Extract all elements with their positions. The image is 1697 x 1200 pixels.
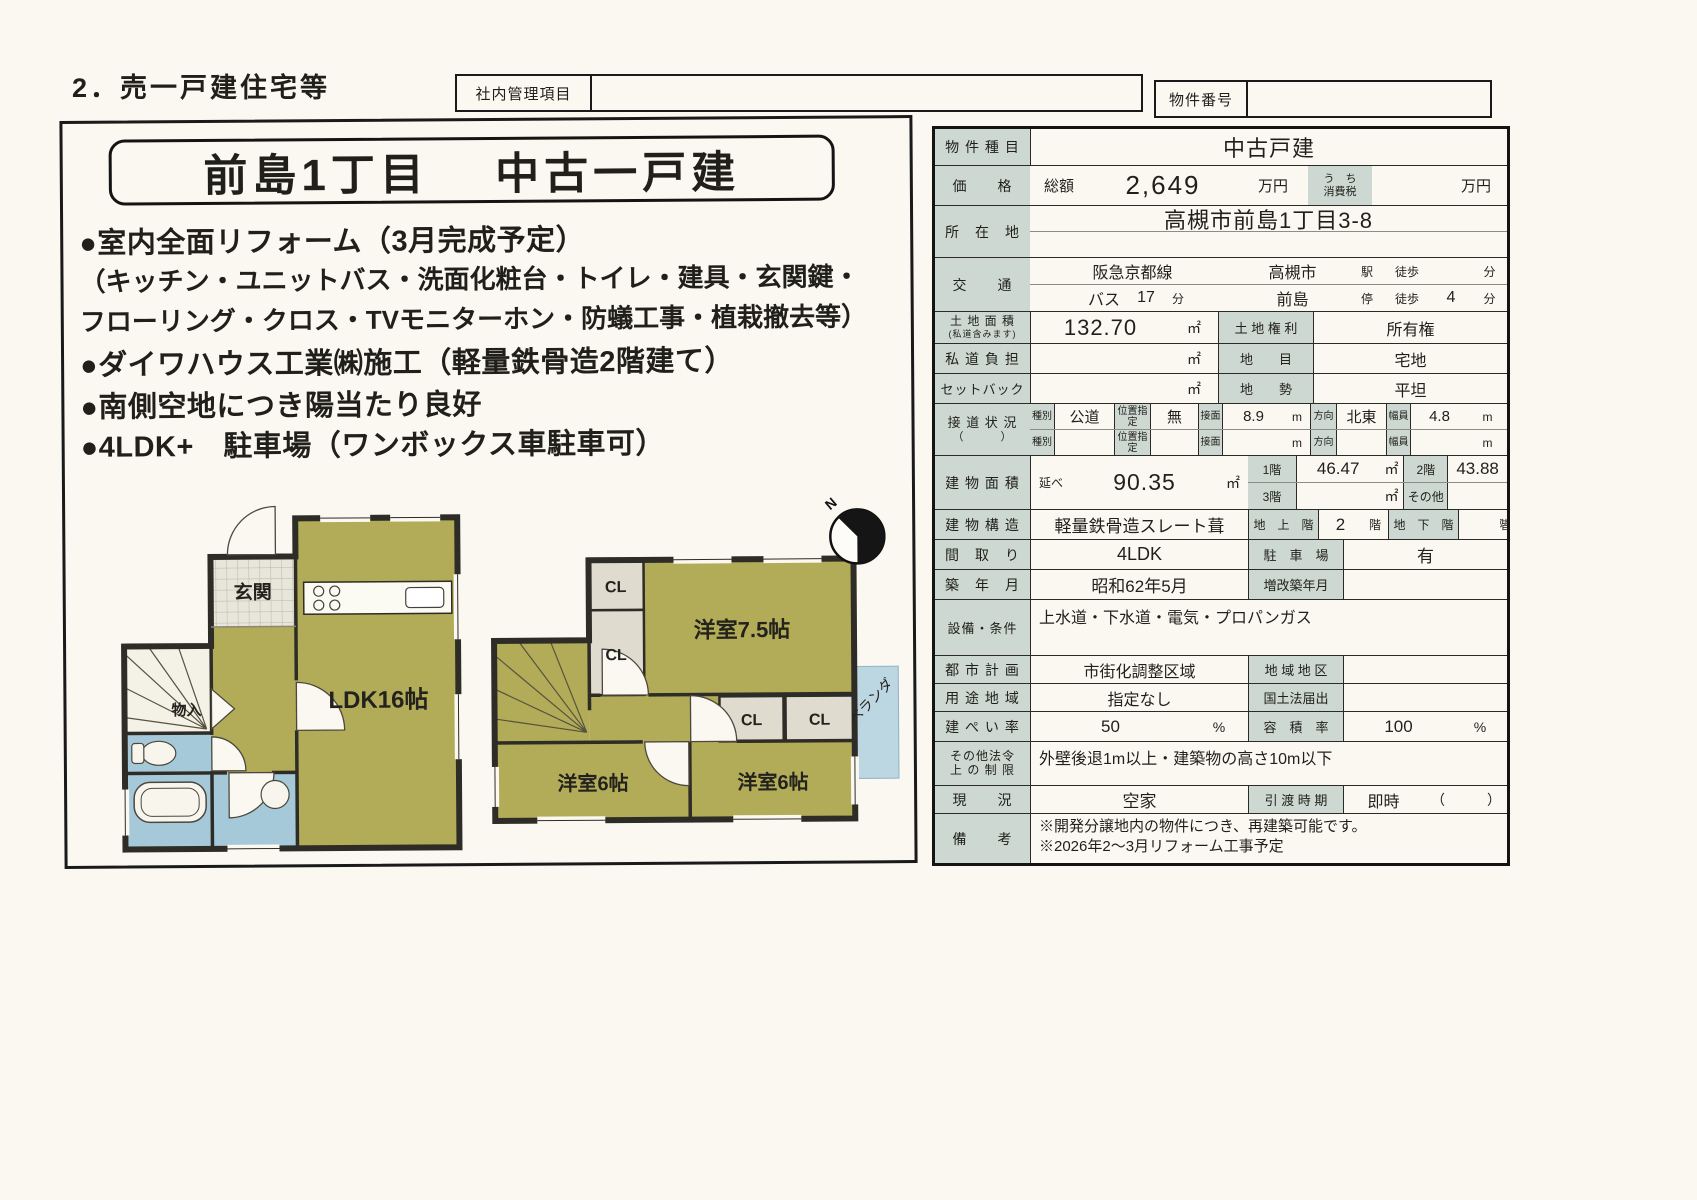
floor-other-label: その他 [1403, 483, 1447, 509]
property-number-box: 物件番号 [1154, 80, 1492, 118]
price-tax-value [1372, 166, 1445, 205]
transport-rail: 阪急京都線 [1030, 258, 1235, 284]
road-frontage-unit-2: m [1284, 430, 1310, 455]
land-rights-label: 土 地 権 利 [1218, 312, 1313, 343]
land-category-value: 宅地 [1313, 344, 1507, 373]
row-other-restrictions: その他法令 上 の 制 限 外壁後退1m以上・建築物の高さ10m以下 [935, 741, 1507, 785]
terrain-label: 地 勢 [1218, 374, 1313, 403]
handover-paren: （ ） [1423, 786, 1507, 813]
current-status-label: 現 況 [935, 786, 1030, 813]
coverage-unit: % [1190, 712, 1248, 741]
zoning-value: 指定なし [1030, 684, 1248, 711]
road-access-label: 接 道 状 況 （ ） [935, 404, 1030, 455]
room-label-monoire: 物入 [171, 701, 201, 719]
location-label: 所 在 地 [935, 206, 1030, 257]
building-area-total: 延べ 90.35 ㎡ [1030, 456, 1248, 509]
below-ground-value [1458, 510, 1500, 539]
structure-value: 軽量鉄骨造スレート葺 [1030, 510, 1248, 539]
property-spec-table: 物 件 種 目 中古戸建 価 格 総額 2,649 万円 う ち 消費税 万円 … [932, 126, 1510, 866]
road-type-value: 公道 [1054, 404, 1114, 429]
room-label-ldk: LDK16帖 [328, 686, 428, 714]
transport-unit1: 分 [1472, 258, 1507, 284]
price-unit: 万円 [1238, 166, 1308, 205]
building-area-unit: ㎡ [1226, 473, 1240, 493]
building-area-prefix: 延べ [1039, 474, 1063, 491]
coverage-value: 50 [1030, 712, 1190, 741]
transport-rail-line: 阪急京都線 高槻市 駅 徒歩 分 [1030, 258, 1507, 284]
bullet-renovation-detail-1: （キッチン・ユニットバス・洗面化粧台・トイレ・建具・玄関鍵・ [79, 256, 859, 298]
row-land-area: 土 地 面 積 (私道含みます) 132.70 ㎡ 土 地 権 利 所有権 [935, 311, 1507, 343]
transport-bus-line: バス 17 分 前島 停 徒歩 4 分 [1030, 284, 1507, 311]
closet-label-cl1: CL [605, 579, 627, 596]
property-type-label: 物 件 種 目 [935, 129, 1030, 165]
closet-label-cl4: CL [809, 712, 831, 729]
road-width-unit-2: m [1468, 430, 1507, 455]
price-tax-label: う ち 消費税 [1308, 166, 1372, 205]
road-width-value-2 [1410, 430, 1468, 455]
property-type-value: 中古戸建 [1030, 129, 1507, 165]
built-date-label: 築 年 月 [935, 570, 1030, 599]
handover-value: 即時 [1343, 786, 1423, 813]
coverage-label: 建 ぺ い 率 [935, 712, 1030, 741]
land-law-label: 国土法届出 [1248, 684, 1343, 711]
road-type-label-2: 種別 [1030, 430, 1054, 455]
compass-north-icon: N [817, 494, 894, 573]
property-number-label: 物件番号 [1156, 82, 1248, 116]
transport-station: 高槻市 [1235, 258, 1350, 284]
land-category-label: 地 目 [1218, 344, 1313, 373]
floor3-unit: ㎡ [1379, 483, 1403, 509]
above-ground-unit: 階 [1362, 510, 1388, 539]
road-designation-value-2 [1150, 430, 1198, 455]
built-date-value: 昭和62年5月 [1030, 570, 1248, 599]
internal-management-box: 社内管理項目 [455, 74, 1143, 112]
transport-bus-unit: 分 [1172, 285, 1235, 311]
internal-management-field [592, 76, 1141, 110]
compass-n-label: N [822, 494, 840, 513]
floor-other-value [1447, 483, 1507, 509]
land-area-unit: ㎡ [1170, 312, 1218, 343]
kitchen-counter-icon [304, 581, 452, 614]
row-transport: 交 通 阪急京都線 高槻市 駅 徒歩 分 バス 17 分 前島 停 徒歩 [935, 257, 1507, 311]
room-label-yoshitsu75: 洋室7.5帖 [694, 617, 791, 643]
closet-label-cl3: CL [741, 712, 763, 729]
road-direction-value: 北東 [1336, 404, 1386, 429]
road-frontage-value: 8.9 [1222, 404, 1284, 429]
bullet-renovation-detail-2: フローリング・クロス・TVモニターホン・防蟻工事・植栽撤去等） [80, 296, 867, 338]
floor1-unit: ㎡ [1379, 456, 1403, 482]
floor1-label: 1階 [1248, 456, 1296, 482]
row-property-type: 物 件 種 目 中古戸建 [935, 129, 1507, 165]
renovation-date-value [1343, 570, 1507, 599]
location-line2 [1030, 231, 1507, 257]
row-city-plan: 都 市 計 画 市街化調整区域 地 域 地 区 [935, 655, 1507, 683]
bullet-builder: ●ダイワハウス工業㈱施工（軽量鉄骨造2階建て） [80, 337, 734, 384]
land-area-value: 132.70 [1030, 312, 1170, 343]
setback-unit: ㎡ [1170, 374, 1218, 403]
layout-value: 4LDK [1030, 540, 1248, 569]
road-frontage-unit: m [1284, 404, 1310, 429]
building-area-floors-1: 1階 46.47 ㎡ 2階 43.88 ㎡ [1248, 456, 1507, 482]
facilities-label: 設備・条件 [935, 600, 1030, 655]
remarks-value: ※開発分譲地内の物件につき、再建築可能です。 ※2026年2～3月リフォーム工事… [1030, 814, 1507, 863]
floor1-value: 46.47 [1296, 456, 1380, 482]
page-heading: 2．売一戸建住宅等 [72, 66, 330, 105]
floor-ratio-value: 100 [1343, 712, 1453, 741]
row-built-date: 築 年 月 昭和62年5月 増改築年月 [935, 569, 1507, 599]
property-number-field [1248, 82, 1490, 116]
district-label: 地 域 地 区 [1248, 656, 1343, 683]
private-road-value [1030, 344, 1170, 373]
row-location: 所 在 地 高槻市前島1丁目3-8 [935, 205, 1507, 257]
internal-management-label: 社内管理項目 [457, 76, 592, 110]
transport-bus: バス [1030, 285, 1120, 311]
row-facilities: 設備・条件 上水道・下水道・電気・プロパンガス [935, 599, 1507, 655]
row-current-status: 現 況 空家 引 渡 時 期 即時 （ ） [935, 785, 1507, 813]
row-layout: 間 取 り 4LDK 駐 車 場 有 [935, 539, 1507, 569]
transport-bus-min: 17 [1120, 285, 1172, 311]
handover-label: 引 渡 時 期 [1248, 786, 1343, 813]
transport-station-suffix: 駅 [1350, 258, 1384, 284]
location-value: 高槻市前島1丁目3-8 [1030, 206, 1507, 231]
transport-walk2: 徒歩 [1384, 285, 1430, 311]
transport-stop-suffix: 停 [1350, 285, 1384, 311]
row-zoning: 用 途 地 域 指定なし 国土法届出 [935, 683, 1507, 711]
floor2-label: 2階 [1403, 456, 1447, 482]
land-law-value [1343, 684, 1507, 711]
city-plan-label: 都 市 計 画 [935, 656, 1030, 683]
transport-unit2: 分 [1472, 285, 1507, 311]
private-road-unit: ㎡ [1170, 344, 1218, 373]
renovation-date-label: 増改築年月 [1248, 570, 1343, 599]
road-frontage-value-2 [1222, 430, 1284, 455]
facilities-value: 上水道・下水道・電気・プロパンガス [1030, 600, 1507, 655]
other-restrictions-label: その他法令 上 の 制 限 [935, 742, 1030, 785]
row-price: 価 格 総額 2,649 万円 う ち 消費税 万円 [935, 165, 1507, 205]
row-structure: 建 物 構 造 軽量鉄骨造スレート葺 地 上 階 2 階 地 下 階 階 [935, 509, 1507, 539]
floor2-value: 43.88 [1447, 456, 1507, 482]
property-flyer-sheet: 2．売一戸建住宅等 社内管理項目 物件番号 前島1丁目 中古一戸建 ●室内全面リ… [0, 0, 1697, 1200]
bullet-renovation: ●室内全面リフォーム（3月完成予定） [79, 216, 585, 262]
terrain-value: 平坦 [1313, 374, 1507, 403]
property-highlight-panel: 前島1丁目 中古一戸建 ●室内全面リフォーム（3月完成予定） （キッチン・ユニッ… [59, 115, 917, 869]
row-remarks: 備 考 ※開発分譲地内の物件につき、再建築可能です。 ※2026年2～3月リフォ… [935, 813, 1507, 863]
road-designation-label: 位置指定 [1114, 404, 1150, 429]
transport-min1 [1430, 258, 1472, 284]
building-area-label: 建 物 面 積 [935, 456, 1030, 509]
floor3-value [1296, 483, 1380, 509]
building-area-floors-2: 3階 ㎡ その他 ㎡ [1248, 482, 1507, 509]
bullet-sunlight: ●南側空地につき陽当たり良好 [80, 381, 482, 426]
road-designation-value: 無 [1150, 404, 1198, 429]
road-width-value: 4.8 [1410, 404, 1468, 429]
road-designation-label-2: 位置指定 [1114, 430, 1150, 455]
property-title-banner: 前島1丁目 中古一戸建 [109, 135, 835, 206]
road-access-line2: 種別 位置指定 接面 m 方向 幅員 m [1030, 429, 1507, 455]
room-label-yoshitsu6a: 洋室6帖 [557, 771, 628, 795]
below-ground-label: 地 下 階 [1388, 510, 1458, 539]
layout-label: 間 取 り [935, 540, 1030, 569]
row-coverage-ratio: 建 ぺ い 率 50 % 容 積 率 100 % [935, 711, 1507, 741]
price-value: 2,649 [1088, 166, 1238, 205]
road-access-line1: 種別 公道 位置指定 無 接面 8.9 m 方向 北東 幅員 4.8 m [1030, 404, 1507, 429]
above-ground-label: 地 上 階 [1248, 510, 1318, 539]
row-building-area: 建 物 面 積 延べ 90.35 ㎡ 1階 46.47 ㎡ 2階 43.88 ㎡… [935, 455, 1507, 509]
land-area-label: 土 地 面 積 (私道含みます) [935, 312, 1030, 343]
district-value [1343, 656, 1507, 683]
floor-ratio-unit: % [1453, 712, 1507, 741]
remarks-line2: ※2026年2～3月リフォーム工事予定 [1039, 837, 1284, 857]
road-direction-label-2: 方向 [1310, 430, 1336, 455]
room-label-genkan: 玄関 [234, 581, 272, 604]
road-direction-label: 方向 [1310, 404, 1336, 429]
building-area-value: 90.35 [1113, 469, 1176, 496]
bullet-layout-parking: ●4LDK+ 駐車場（ワンボックス車駐車可） [81, 420, 666, 466]
below-ground-unit: 階 [1500, 510, 1507, 539]
row-setback: セットバック ㎡ 地 勢 平坦 [935, 373, 1507, 403]
room-label-yoshitsu6b: 洋室6帖 [737, 770, 808, 794]
closet-label-cl2: CL [605, 647, 627, 664]
price-prefix: 総額 [1030, 166, 1088, 205]
city-plan-value: 市街化調整区域 [1030, 656, 1248, 683]
road-direction-value-2 [1336, 430, 1386, 455]
road-type-value-2 [1054, 430, 1114, 455]
floorplan-1f: 玄関 物入 LDK16帖 [105, 489, 468, 864]
land-rights-value: 所有権 [1313, 312, 1507, 343]
floor3-label: 3階 [1248, 483, 1296, 509]
row-private-road: 私 道 負 担 ㎡ 地 目 宅地 [935, 343, 1507, 373]
remarks-label: 備 考 [935, 814, 1030, 863]
price-tax-unit: 万円 [1445, 166, 1507, 205]
parking-label: 駐 車 場 [1248, 540, 1343, 569]
remarks-line1: ※開発分譲地内の物件につき、再建築可能です。 [1039, 817, 1366, 837]
floor-ratio-label: 容 積 率 [1248, 712, 1343, 741]
road-width-label-2: 幅員 [1386, 430, 1410, 455]
current-status-value: 空家 [1030, 786, 1248, 813]
transport-stop: 前島 [1235, 285, 1350, 311]
zoning-label: 用 途 地 域 [935, 684, 1030, 711]
road-width-unit: m [1468, 404, 1507, 429]
road-type-label: 種別 [1030, 404, 1054, 429]
other-restrictions-value: 外壁後退1m以上・建築物の高さ10m以下 [1030, 742, 1507, 785]
structure-label: 建 物 構 造 [935, 510, 1030, 539]
setback-value [1030, 374, 1170, 403]
price-label: 価 格 [935, 166, 1030, 205]
private-road-label: 私 道 負 担 [935, 344, 1030, 373]
road-frontage-label-2: 接面 [1198, 430, 1222, 455]
road-frontage-label: 接面 [1198, 404, 1222, 429]
transport-walk1: 徒歩 [1384, 258, 1430, 284]
parking-value: 有 [1343, 540, 1507, 569]
above-ground-value: 2 [1318, 510, 1362, 539]
road-width-label: 幅員 [1386, 404, 1410, 429]
setback-label: セットバック [935, 374, 1030, 403]
transport-label: 交 通 [935, 258, 1030, 311]
transport-min2: 4 [1430, 285, 1472, 311]
row-road-access: 接 道 状 況 （ ） 種別 公道 位置指定 無 接面 8.9 m 方向 北東 … [935, 403, 1507, 455]
